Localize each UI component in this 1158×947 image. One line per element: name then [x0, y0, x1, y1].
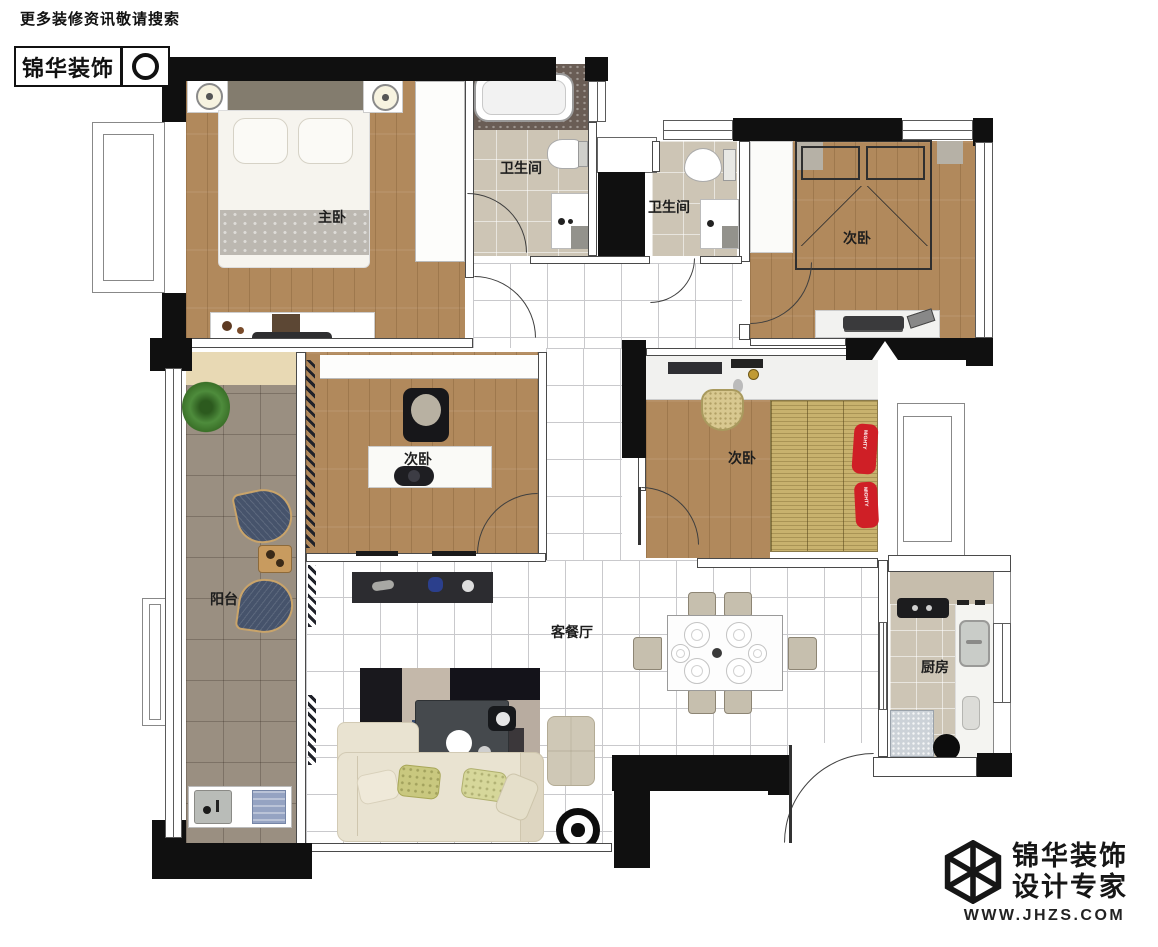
decor-bowl [222, 321, 232, 331]
tv-decor-ball [462, 580, 474, 592]
place-setting [726, 658, 752, 684]
search-icon [132, 53, 159, 80]
dining-chair [724, 690, 752, 714]
wall-thin [538, 352, 547, 560]
pillow [298, 118, 353, 164]
sink-faucet [966, 640, 982, 644]
room-label-bedroom-mr: 次卧 [728, 448, 756, 468]
sink-tap-dot [707, 220, 714, 227]
window [975, 142, 993, 338]
toilet-tank [578, 141, 588, 167]
sink-faucet [216, 800, 219, 812]
sink-tap-dot [558, 218, 565, 225]
side-ottoman [547, 716, 595, 786]
wall-wedge [977, 753, 1012, 777]
pillow-text: MIGHTY [861, 430, 867, 450]
brand-website: WWW.JHZS.COM [942, 907, 1147, 925]
logo-divider [120, 48, 123, 85]
sofa-pillow [396, 764, 441, 800]
wall [152, 843, 312, 879]
wall-thin [588, 122, 597, 256]
tv-flat [843, 316, 904, 330]
media-box [272, 314, 300, 333]
corridor-floor-v [546, 348, 622, 560]
wall-notch [872, 341, 898, 360]
wall [585, 57, 608, 81]
balcony-side-table [258, 545, 292, 573]
room-label-bath1: 卫生间 [500, 158, 542, 178]
wall-thin [888, 555, 1011, 572]
pipe-shaft [598, 172, 645, 256]
wall-thin [186, 338, 473, 348]
window [902, 120, 973, 140]
pillow-outline [801, 146, 860, 180]
dining-chair [633, 637, 662, 670]
lamp-icon [196, 83, 223, 110]
room-label-living: 客餐厅 [551, 622, 593, 642]
pillow-outline [866, 146, 925, 180]
wall-thin [646, 348, 878, 356]
desk-shelf [668, 362, 722, 374]
toilet-tank [723, 149, 736, 181]
brand-footer: 锦华装饰 设计专家 WWW.JHZS.COM [942, 840, 1147, 925]
place-setting [684, 658, 710, 684]
room-label-bath2: 卫生间 [648, 197, 690, 217]
toilet-icon [684, 148, 722, 182]
tv-decor-flower [428, 577, 443, 592]
sink-tap-dot [203, 806, 211, 814]
table-center-decor [712, 648, 722, 658]
counter-dash [957, 600, 969, 605]
bed-blanket [220, 210, 369, 255]
monitor [731, 359, 763, 368]
search-tagline: 更多装修资讯敬请搜索 [20, 8, 180, 29]
dining-chair [724, 592, 752, 616]
wall-thin [296, 352, 306, 845]
cutting-board [962, 696, 980, 730]
wall-column [622, 340, 646, 458]
bay-window-inner [149, 604, 161, 720]
wardrobe-strip [306, 360, 315, 548]
sofa-seat-line [357, 756, 358, 836]
master-wardrobe [415, 81, 465, 262]
dining-chair [688, 592, 716, 616]
sink-counter-dark [722, 226, 738, 248]
bedroom-tr-closet [750, 141, 793, 253]
sink-tap-dot [568, 219, 573, 224]
table-cup [266, 550, 275, 559]
room-label-balcony: 阳台 [210, 589, 238, 609]
place-setting [671, 644, 690, 663]
lamp-icon [372, 84, 399, 111]
wall-thin [873, 757, 977, 777]
sliding-door [879, 622, 887, 710]
brand-slogan: 设计专家 [1012, 872, 1128, 903]
wall-column [614, 791, 650, 868]
toilet-icon [547, 139, 581, 169]
chair-cushion [411, 394, 441, 426]
table-cup [276, 559, 284, 567]
desk-gold-jar [748, 369, 759, 380]
window [993, 623, 1011, 703]
pillow-text: MIGHTY [862, 487, 868, 507]
wall-thin [700, 256, 742, 264]
window [588, 81, 606, 122]
cooktop-knob [912, 605, 918, 611]
curtain-squiggle [308, 565, 316, 627]
desk-lamp-dot [408, 470, 420, 482]
place-setting [684, 622, 710, 648]
floor-plan-page: 更多装修资讯敬请搜索 锦华装饰 [0, 0, 1158, 947]
decor-bowl [237, 327, 244, 334]
room-label-bedroom-tr: 次卧 [843, 228, 871, 248]
wall [162, 57, 556, 81]
wall-thin [739, 141, 750, 262]
cooktop-knob [926, 605, 932, 611]
counter-dash [975, 600, 985, 605]
wall [150, 338, 192, 371]
place-setting [726, 622, 752, 648]
bay-window-inner [903, 416, 952, 542]
door-leaf [789, 745, 792, 843]
brand-company: 锦华装饰 [1012, 841, 1128, 872]
brand-logo-box: 锦华装饰 [14, 46, 170, 87]
curtain-squiggle [308, 695, 316, 765]
rattan-chair [701, 389, 744, 431]
sink-counter-dark [571, 226, 589, 249]
bedroom-ml-shelf [320, 355, 538, 379]
bathtub-inner [482, 80, 566, 115]
window [663, 120, 733, 140]
dining-chair [788, 637, 817, 670]
plant-icon [182, 381, 230, 433]
wall-thin [530, 256, 650, 264]
wall-thin [638, 455, 646, 491]
room-label-bedroom-ml: 次卧 [404, 449, 432, 469]
wall-thin [739, 324, 750, 340]
hexagon-cube-icon [942, 840, 1004, 904]
door-track-dash [356, 551, 398, 556]
place-setting [748, 644, 767, 663]
room-label-master: 主卧 [318, 207, 346, 227]
wall [612, 755, 792, 791]
door-track-dash [432, 551, 476, 556]
bay-window-inner [103, 134, 154, 281]
wall [966, 357, 993, 366]
dining-chair [688, 690, 716, 714]
door-leaf [638, 487, 641, 545]
wall [733, 118, 902, 141]
wall-thin [750, 338, 846, 346]
fridge [890, 710, 934, 757]
laundry-sink [194, 790, 232, 824]
wall-thin [697, 558, 878, 568]
red-pillow: MIGHTY [851, 423, 878, 475]
wall-thin [652, 141, 660, 172]
hall-closet [597, 137, 657, 173]
table-plate [496, 712, 510, 726]
window [165, 368, 182, 838]
pillow [233, 118, 288, 164]
balcony-mat [186, 352, 296, 385]
towel-stack [252, 790, 286, 824]
wall-thin [306, 843, 612, 852]
brand-logo-text: 锦华装饰 [16, 51, 120, 83]
room-label-kitchen: 厨房 [921, 657, 949, 677]
red-pillow: MIGHTY [854, 481, 879, 528]
bedroom-tr-nightstand-right [937, 141, 963, 164]
cooktop [897, 598, 949, 618]
wall-thin [306, 553, 546, 562]
